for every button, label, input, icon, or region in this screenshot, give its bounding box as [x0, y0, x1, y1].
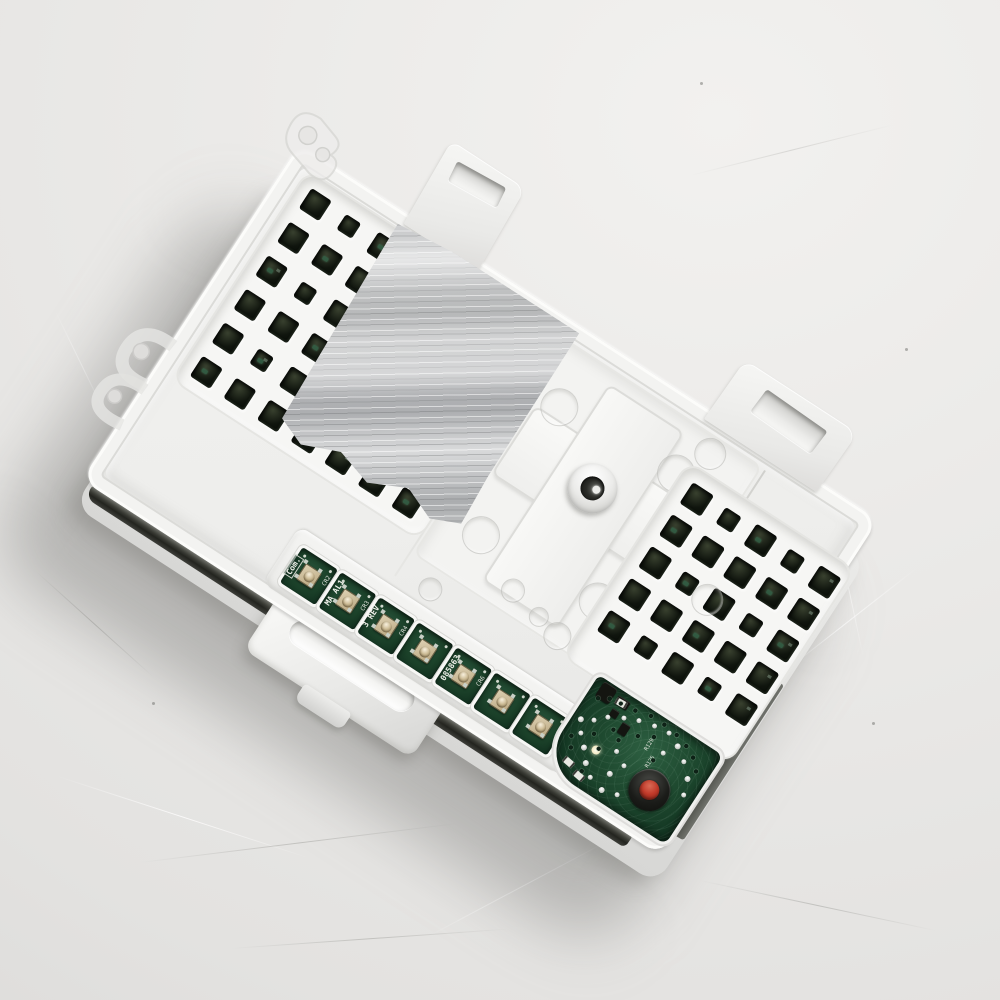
switch-dome [378, 619, 393, 634]
vent-hole [715, 507, 741, 533]
solder-pad [582, 759, 590, 767]
solder-pad [621, 762, 628, 769]
vent-hole [660, 651, 695, 686]
solder-pad [680, 792, 687, 799]
vent-hole [691, 535, 726, 570]
solder-pad [620, 715, 627, 722]
vent-hole [267, 310, 300, 343]
vent-hole [681, 619, 716, 654]
screw-pin-highlight [591, 484, 602, 495]
vent-hole [807, 565, 842, 600]
vent-hole [310, 243, 343, 276]
switch-dome [494, 694, 509, 709]
switch-dome [417, 644, 432, 659]
vent-hole [754, 576, 789, 611]
pcb-via [662, 722, 668, 728]
vent-hole [713, 640, 748, 675]
vent-hole [277, 222, 310, 255]
surface-scratch [690, 124, 894, 176]
dust-speck [152, 702, 155, 705]
vent-hole [255, 255, 288, 288]
pcb-via [569, 733, 575, 739]
vent-hole [190, 356, 223, 389]
vent-hole [786, 597, 821, 632]
vent-hole [745, 661, 780, 696]
surface-scratch [700, 880, 935, 931]
pcb-via [595, 696, 601, 702]
pcb-via [635, 733, 641, 739]
solder-pad [635, 717, 642, 724]
vent-hole [293, 281, 318, 306]
vent-hole [597, 610, 632, 645]
pcb-via [616, 737, 622, 743]
surface-scratch [55, 775, 312, 859]
red-button-cap [636, 776, 664, 804]
pcb-via [648, 713, 654, 719]
resistor-component [562, 755, 576, 768]
solder-pad [606, 770, 614, 778]
dust-speck [905, 348, 908, 351]
solder-pad [651, 723, 658, 730]
solder-pad [580, 743, 588, 751]
pcb-via [611, 727, 617, 733]
solder-pad [613, 748, 620, 755]
pcb-silk-label: R125 [644, 755, 656, 769]
solder-pad [577, 730, 584, 737]
vent-hole [766, 629, 801, 664]
surface-scratch [230, 928, 509, 949]
solder-pad [577, 715, 585, 723]
smd-component [617, 722, 631, 737]
solder-pad [674, 742, 682, 750]
photo-scene: Com. CR2 MA AL1 CR3 3 REV CR4 085863 [0, 0, 1000, 1000]
pcb-via [591, 731, 597, 737]
red-test-button [620, 761, 678, 819]
solder-pad [598, 786, 606, 794]
vent-hole [724, 692, 759, 727]
vent-hole [617, 578, 652, 613]
vent-hole [738, 612, 764, 638]
vent-hole [723, 555, 758, 590]
pcb-via [568, 745, 574, 751]
solder-pad [591, 717, 598, 724]
control-board: Com. CR2 MA AL1 CR3 3 REV CR4 085863 [82, 144, 879, 855]
switch-dome [533, 719, 548, 734]
solder-pad [683, 775, 691, 783]
vent-hole [679, 482, 714, 517]
tactile-switch [489, 688, 515, 714]
tactile-switch [527, 713, 553, 739]
vent-hole [633, 635, 659, 661]
solder-pad [666, 730, 673, 737]
solder-pad [660, 750, 667, 757]
vent-hole [638, 546, 673, 581]
vent-hole [743, 524, 778, 559]
tactile-switch [296, 563, 322, 589]
vent-hole [779, 548, 805, 574]
pcb-via [633, 708, 639, 714]
tactile-switch [373, 613, 399, 639]
vent-hole [233, 289, 266, 322]
tactile-switch [412, 638, 438, 664]
vent-hole [649, 598, 684, 633]
switch-dome [301, 569, 316, 584]
vent-hole [659, 514, 694, 549]
pcb-via [693, 769, 699, 775]
dust-speck [700, 82, 703, 85]
solder-pad [680, 758, 687, 765]
pcb-via [684, 743, 690, 749]
mounting-tab-slot [750, 389, 827, 454]
vent-hole [249, 348, 274, 373]
pcb-via [690, 755, 696, 761]
pcb-via [674, 732, 680, 738]
dust-speck [872, 722, 875, 725]
solder-pad [614, 791, 621, 798]
solder-pad [587, 774, 594, 781]
screw-hole [576, 472, 609, 505]
switch-dome [340, 594, 355, 609]
pcb-silk-label: R129 [643, 738, 655, 752]
vent-hole [696, 676, 722, 702]
vent-hole [336, 214, 361, 239]
vent-hole [212, 322, 245, 355]
switch-dome [456, 669, 471, 684]
mounting-tab-slot [448, 161, 507, 208]
vent-hole [223, 378, 256, 411]
